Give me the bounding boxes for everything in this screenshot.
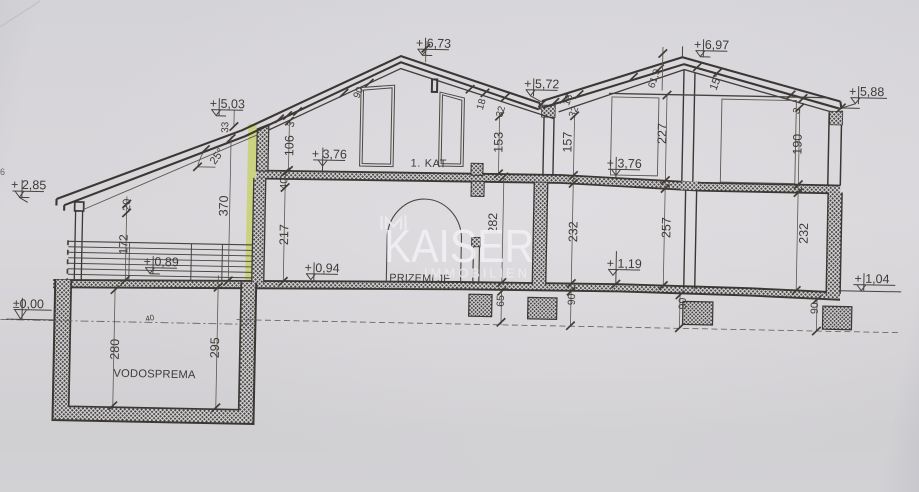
svg-text:20: 20 (121, 199, 133, 211)
svg-text:40: 40 (144, 313, 155, 324)
svg-text:370: 370 (217, 195, 231, 216)
svg-text:40: 40 (278, 178, 290, 190)
svg-text:153: 153 (491, 132, 505, 153)
svg-text:33: 33 (220, 121, 231, 133)
svg-text:KAISER: KAISER (384, 220, 534, 272)
svg-text:VODOSPREMA: VODOSPREMA (113, 368, 196, 382)
svg-text:+ 1,04: + 1,04 (854, 272, 889, 287)
svg-text:+ 5,03: + 5,03 (210, 97, 245, 112)
svg-text:+ 3,76: + 3,76 (312, 147, 347, 162)
svg-text:+ 6,97: + 6,97 (694, 38, 729, 53)
svg-text:1. KAT: 1. KAT (410, 158, 447, 171)
svg-text:232: 232 (566, 221, 580, 242)
svg-text:+ 5,88: + 5,88 (849, 84, 884, 99)
svg-text:+ 3,76: + 3,76 (607, 156, 642, 171)
svg-text:3: 3 (791, 106, 803, 116)
svg-text:+ 5,72: + 5,72 (524, 77, 559, 92)
svg-text:257: 257 (659, 217, 673, 238)
svg-text:90: 90 (809, 302, 821, 314)
svg-text:PRIZEMLJE: PRIZEMLJE (389, 272, 450, 285)
svg-text:65: 65 (495, 295, 507, 307)
svg-text:190: 190 (790, 134, 804, 155)
svg-text:227: 227 (655, 123, 669, 144)
svg-text:295: 295 (208, 337, 222, 358)
svg-text:+ 0,89: + 0,89 (143, 255, 178, 270)
svg-text:90: 90 (566, 293, 578, 305)
svg-text:106: 106 (282, 135, 296, 156)
svg-text:217: 217 (277, 224, 291, 245)
svg-text:157: 157 (560, 132, 574, 153)
svg-text:+ 0,94: + 0,94 (304, 261, 339, 276)
svg-text:+ 2,85: + 2,85 (11, 178, 46, 193)
svg-text:172: 172 (116, 234, 130, 255)
svg-text:6: 6 (0, 167, 5, 177)
svg-text:+ 6,73: + 6,73 (416, 36, 451, 51)
svg-text:+ 1,19: + 1,19 (607, 256, 642, 271)
svg-text:3: 3 (286, 120, 298, 129)
svg-text:IMMOBILIEN: IMMOBILIEN (424, 266, 527, 281)
svg-text:90: 90 (677, 297, 689, 309)
svg-text:18: 18 (475, 97, 489, 111)
svg-text:61,9: 61,9 (647, 67, 664, 89)
svg-text:280: 280 (108, 339, 122, 360)
svg-text:32: 32 (494, 104, 508, 118)
svg-text:232: 232 (797, 223, 811, 244)
